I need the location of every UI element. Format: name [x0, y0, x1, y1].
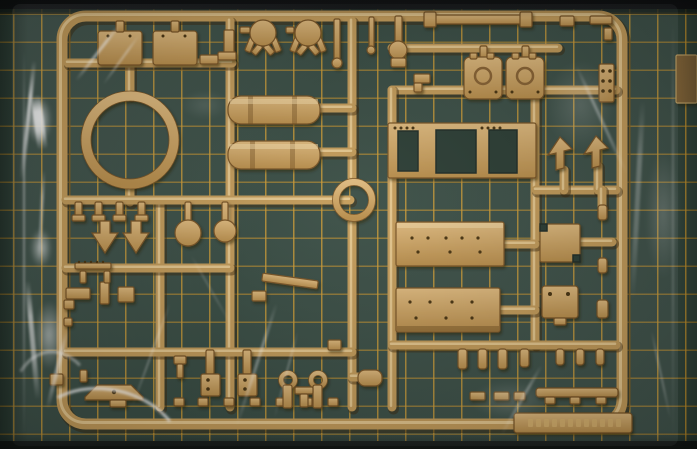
photo-of-sprue: [0, 0, 697, 449]
photo-vignette: [0, 0, 697, 449]
